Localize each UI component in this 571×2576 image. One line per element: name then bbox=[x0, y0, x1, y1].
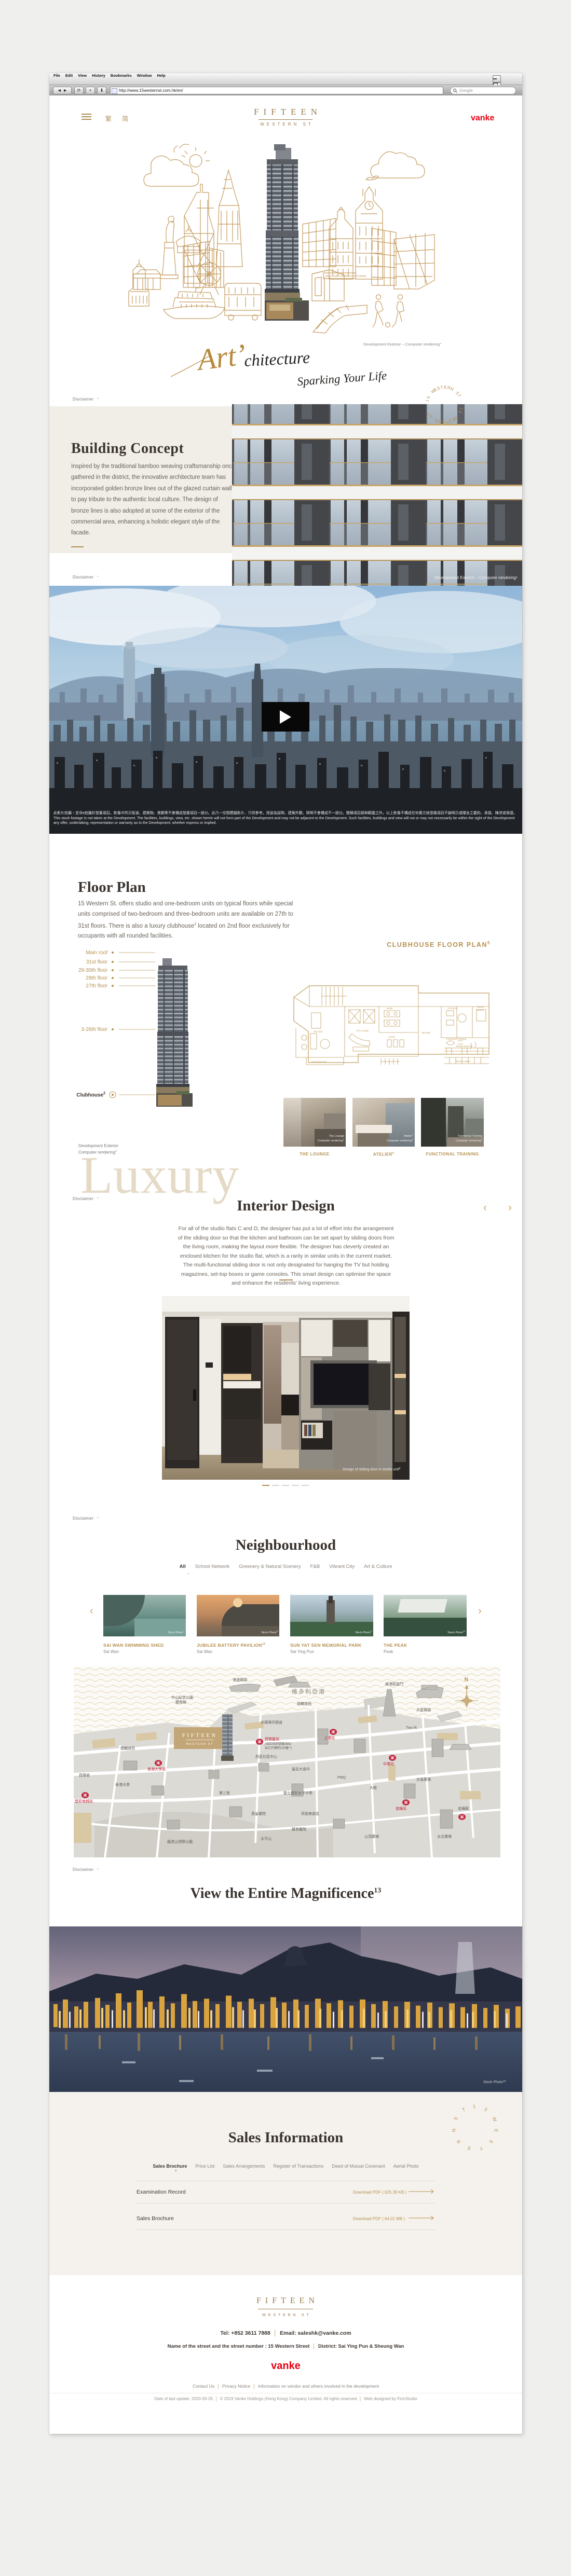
svg-text:WESTERN HARBOUR TUNNEL: WESTERN HARBOUR TUNNEL bbox=[325, 275, 367, 278]
svg-text:Yoga &: Yoga & bbox=[477, 1005, 484, 1008]
svg-text:Speed Ladder: Speed Ladder bbox=[456, 1060, 471, 1063]
svg-text:Stretch: Stretch bbox=[477, 1009, 484, 1011]
svg-text:英皇書院: 英皇書院 bbox=[251, 1811, 266, 1816]
svg-text:太古廣場: 太古廣場 bbox=[437, 1834, 452, 1839]
svg-text:Art’: Art’ bbox=[194, 337, 248, 377]
svg-text:中山紀念公園: 中山紀念公園 bbox=[171, 1695, 193, 1700]
svg-text:交易廣場: 交易廣場 bbox=[416, 1777, 431, 1782]
svg-text:港澳碼頭: 港澳碼頭 bbox=[233, 1677, 247, 1682]
svg-text:天星碼頭: 天星碼頭 bbox=[416, 1708, 431, 1712]
svg-text:龍虎山郊野公園: 龍虎山郊野公園 bbox=[167, 1839, 193, 1844]
svg-text:金鐘廊: 金鐘廊 bbox=[458, 1806, 469, 1811]
svg-text:S: S bbox=[453, 2116, 459, 2121]
svg-text:第三街: 第三街 bbox=[219, 1790, 230, 1795]
svg-text:N: N bbox=[465, 1677, 468, 1683]
svg-text:Design of sliding door in stud: Design of sliding door in studio unit6 bbox=[343, 1467, 401, 1471]
svg-text:T: T bbox=[440, 385, 443, 390]
svg-text:西營盤站: 西營盤站 bbox=[265, 1737, 279, 1741]
svg-text:W: W bbox=[491, 2116, 498, 2123]
svg-text:T: T bbox=[445, 419, 448, 424]
svg-text:Development Exterior – Compute: Development Exterior – Computer renderin… bbox=[434, 575, 518, 580]
svg-text:太平山: 太平山 bbox=[261, 1836, 271, 1841]
svg-text:香港大學站: 香港大學站 bbox=[147, 1767, 166, 1771]
svg-text:Strength: Strength bbox=[422, 1031, 431, 1034]
svg-text:Shuttle Running: Shuttle Running bbox=[456, 1045, 473, 1048]
svg-text:5: 5 bbox=[483, 2106, 488, 2112]
svg-text:堅尼地城站: 堅尼地城站 bbox=[75, 1799, 93, 1803]
svg-text:西環邨: 西環邨 bbox=[79, 1773, 90, 1778]
svg-text:香港大學: 香港大學 bbox=[115, 1782, 130, 1787]
svg-text:Al Fresco: Al Fresco bbox=[447, 1007, 458, 1010]
svg-text:中環灣仔繞道: 中環灣仔繞道 bbox=[261, 1720, 282, 1725]
svg-text:PMQ: PMQ bbox=[337, 1776, 346, 1780]
svg-text:皇后大道中: 皇后大道中 bbox=[292, 1767, 310, 1771]
svg-text:維港凱旋門: 維港凱旋門 bbox=[385, 1682, 403, 1686]
svg-text:(項目與西營盤站B2: (項目與西營盤站B2 bbox=[265, 1742, 292, 1746]
svg-text:The Grill: The Grill bbox=[314, 1030, 322, 1033]
svg-text:高街美食區: 高街美食區 bbox=[301, 1811, 319, 1816]
svg-text:·: · bbox=[425, 407, 429, 409]
svg-text:聖士提反女子中學: 聖士提反女子中學 bbox=[283, 1790, 312, 1795]
svg-text:chitecture: chitecture bbox=[243, 348, 310, 370]
svg-text:FIFTEEN: FIFTEEN bbox=[182, 1733, 217, 1739]
svg-text:出口只需約2分鐘**): 出口只需約2分鐘**) bbox=[265, 1746, 292, 1750]
svg-text:山頂廣場: 山頂廣場 bbox=[364, 1834, 379, 1839]
svg-text:Sparking Your Life: Sparking Your Life bbox=[297, 371, 387, 388]
svg-text:Functional Training: Functional Training bbox=[446, 1038, 467, 1040]
svg-text:WESTERN ST: WESTERN ST bbox=[186, 1743, 214, 1746]
svg-text:維多利亞港: 維多利亞港 bbox=[292, 1688, 325, 1695]
svg-text:Stock Photo10: Stock Photo10 bbox=[483, 2080, 506, 2084]
svg-text:德輔道西: 德輔道西 bbox=[120, 1746, 135, 1751]
svg-text:Downtown Bar: Downtown Bar bbox=[311, 1060, 327, 1063]
svg-text:5: 5 bbox=[426, 395, 431, 399]
svg-text:Cardio: Cardio bbox=[388, 1036, 396, 1038]
svg-text:德輔道西: 德輔道西 bbox=[297, 1701, 311, 1706]
svg-text:體育館: 體育館 bbox=[175, 1700, 186, 1704]
svg-text:The Lounge: The Lounge bbox=[356, 1029, 369, 1032]
svg-text:1: 1 bbox=[473, 2104, 475, 2109]
svg-text:T: T bbox=[461, 2106, 467, 2113]
svg-text:西區社區中心: 西區社區中心 bbox=[255, 1754, 277, 1759]
svg-text:Atelier: Atelier bbox=[386, 1007, 393, 1010]
svg-text:金鐘站: 金鐘站 bbox=[396, 1806, 406, 1811]
svg-text:Two ifc: Two ifc bbox=[406, 1726, 417, 1730]
svg-text:中環站: 中環站 bbox=[383, 1761, 394, 1766]
svg-text:·: · bbox=[459, 401, 464, 403]
svg-text:大館: 大館 bbox=[370, 1785, 377, 1790]
svg-text:上環站: 上環站 bbox=[324, 1735, 335, 1740]
svg-text:贊育醫院: 贊育醫院 bbox=[292, 1827, 306, 1831]
svg-text:5: 5 bbox=[457, 410, 463, 414]
